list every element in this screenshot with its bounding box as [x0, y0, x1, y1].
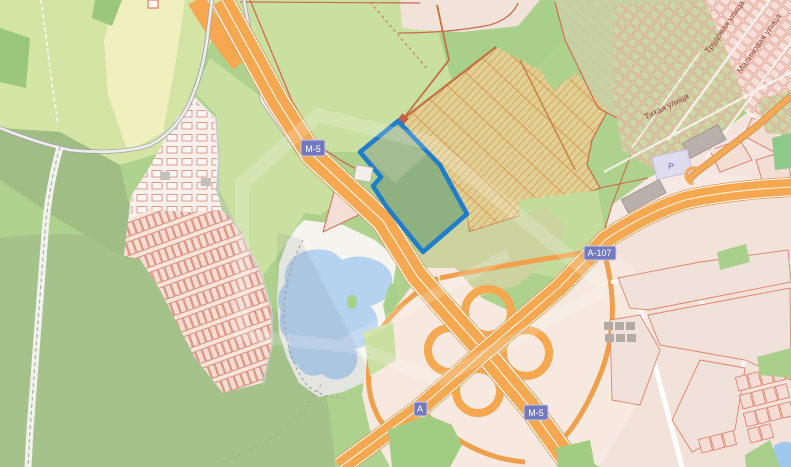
svg-text:Р: Р [668, 161, 674, 171]
svg-text:М-5: М-5 [528, 408, 544, 418]
svg-text:М-5: М-5 [305, 144, 321, 154]
svg-text:А-107: А-107 [587, 248, 611, 258]
svg-text:А: А [417, 404, 423, 414]
